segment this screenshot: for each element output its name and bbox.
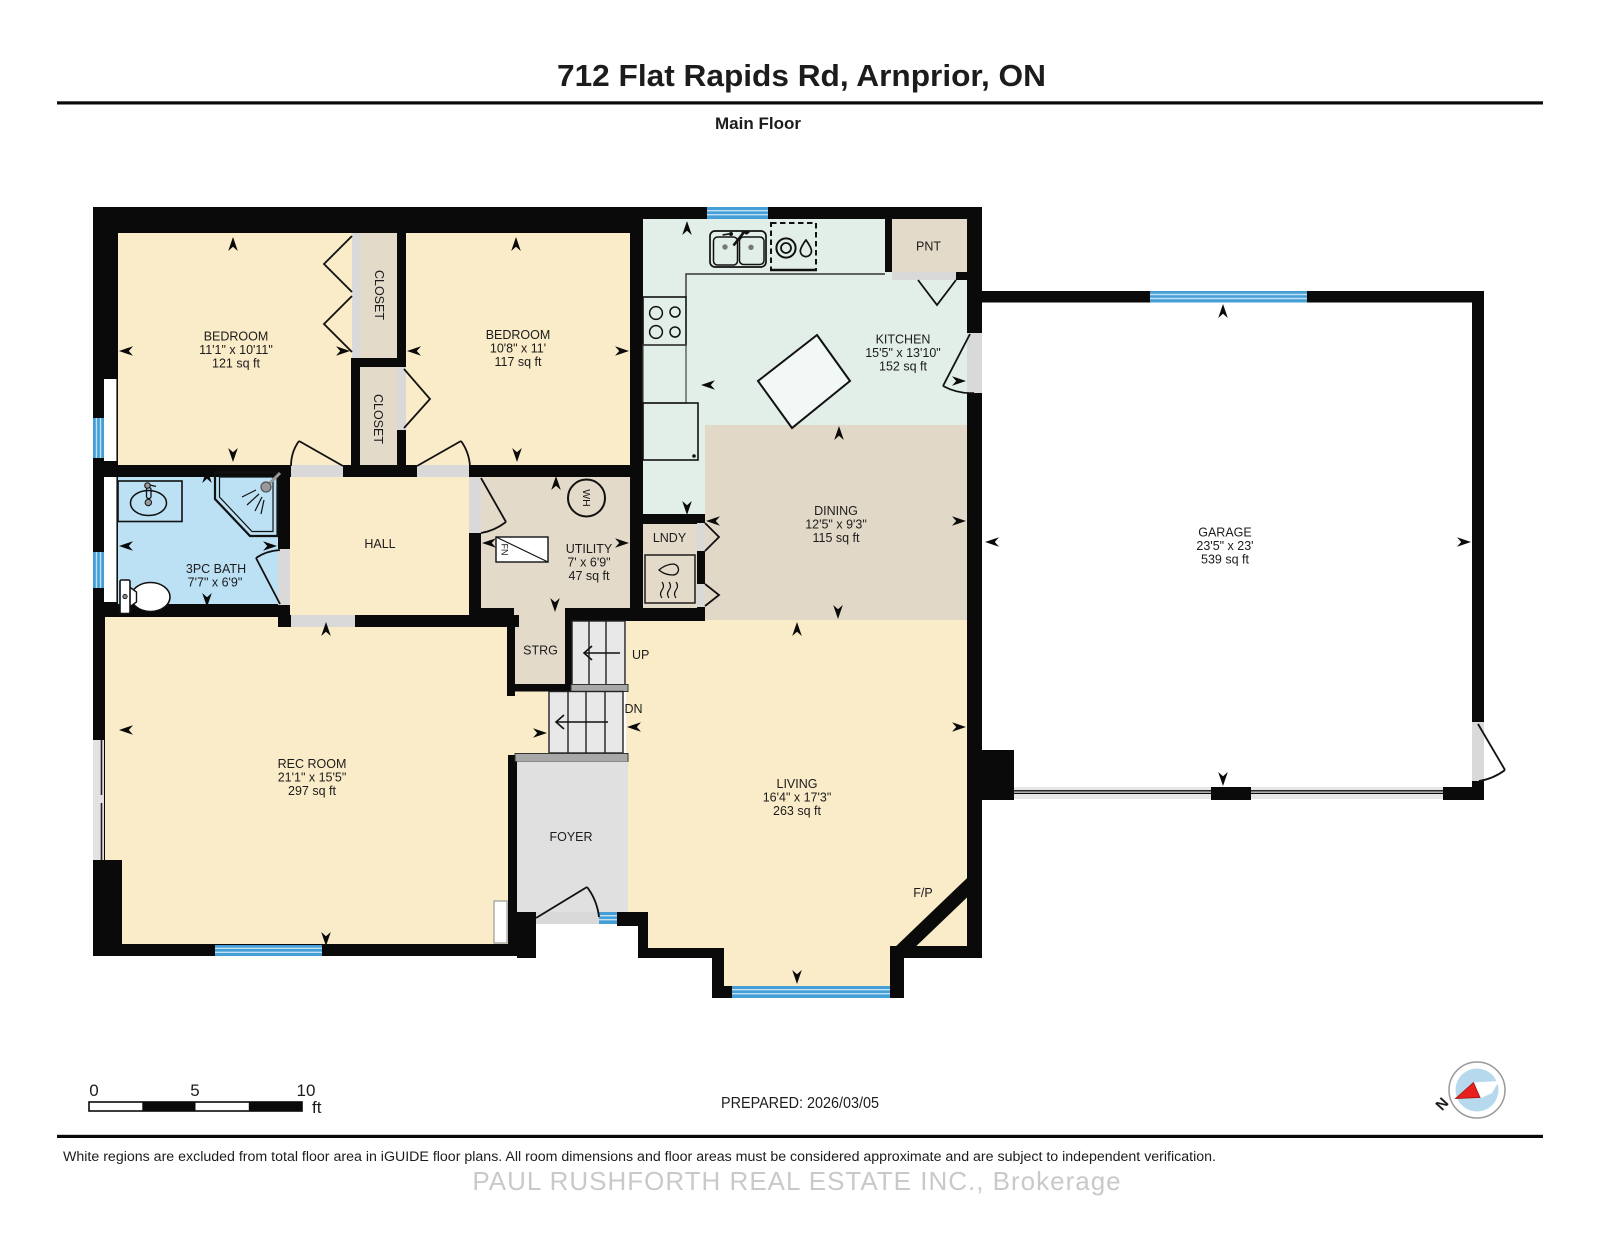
svg-text:F/P: F/P [913,886,932,900]
svg-text:PNT: PNT [916,240,941,254]
svg-text:White regions are excluded fro: White regions are excluded from total fl… [63,1149,1216,1165]
svg-text:DN: DN [625,702,643,716]
svg-text:21'1" x 15'5": 21'1" x 15'5" [278,771,347,785]
svg-text:REC ROOM: REC ROOM [278,757,347,771]
svg-text:117 sq ft: 117 sq ft [494,355,542,369]
svg-text:10'8" x 11': 10'8" x 11' [490,342,546,356]
svg-text:KITCHEN: KITCHEN [876,333,931,347]
svg-text:121 sq ft: 121 sq ft [212,357,260,371]
svg-text:PREPARED: 2026/03/05: PREPARED: 2026/03/05 [721,1095,879,1112]
svg-text:PAUL RUSHFORTH REAL ESTATE INC: PAUL RUSHFORTH REAL ESTATE INC., Brokera… [472,1166,1121,1196]
svg-text:7'7" x 6'9": 7'7" x 6'9" [188,576,243,590]
svg-text:WH: WH [580,489,592,507]
svg-text:Main Floor: Main Floor [715,114,801,133]
svg-text:47 sq ft: 47 sq ft [569,569,611,583]
svg-text:263 sq ft: 263 sq ft [773,804,821,818]
svg-text:LNDY: LNDY [653,531,687,545]
svg-text:DINING: DINING [814,504,858,518]
svg-text:12'5" x 9'3": 12'5" x 9'3" [805,518,867,532]
svg-text:16'4" x 17'3": 16'4" x 17'3" [763,791,832,805]
svg-text:23'5" x 23': 23'5" x 23' [1196,539,1253,553]
svg-text:UP: UP [632,648,649,662]
svg-text:CLOSET: CLOSET [372,270,386,320]
svg-text:CLOSET: CLOSET [371,394,385,444]
svg-text:FN: FN [500,544,510,556]
svg-text:539 sq ft: 539 sq ft [1201,553,1249,567]
svg-text:BEDROOM: BEDROOM [204,330,269,344]
svg-text:0: 0 [89,1081,98,1100]
svg-text:7' x 6'9": 7' x 6'9" [567,556,610,570]
svg-text:712 Flat Rapids Rd, Arnprior,: 712 Flat Rapids Rd, Arnprior, ON [557,58,1046,93]
svg-text:15'5" x 13'10": 15'5" x 13'10" [865,346,941,360]
svg-text:5: 5 [190,1081,199,1100]
svg-text:297 sq ft: 297 sq ft [288,784,336,798]
svg-text:HALL: HALL [364,537,395,551]
svg-text:LIVING: LIVING [777,777,818,791]
svg-text:FOYER: FOYER [549,830,592,844]
svg-text:BEDROOM: BEDROOM [486,328,551,342]
svg-text:GARAGE: GARAGE [1198,526,1252,540]
svg-text:152 sq ft: 152 sq ft [879,360,927,374]
svg-text:ft: ft [312,1098,322,1117]
svg-text:3PC BATH: 3PC BATH [186,562,246,576]
svg-text:STRG: STRG [523,644,558,658]
svg-text:UTILITY: UTILITY [566,542,613,556]
svg-text:11'1" x 10'11": 11'1" x 10'11" [199,343,273,357]
svg-text:115 sq ft: 115 sq ft [812,531,860,545]
